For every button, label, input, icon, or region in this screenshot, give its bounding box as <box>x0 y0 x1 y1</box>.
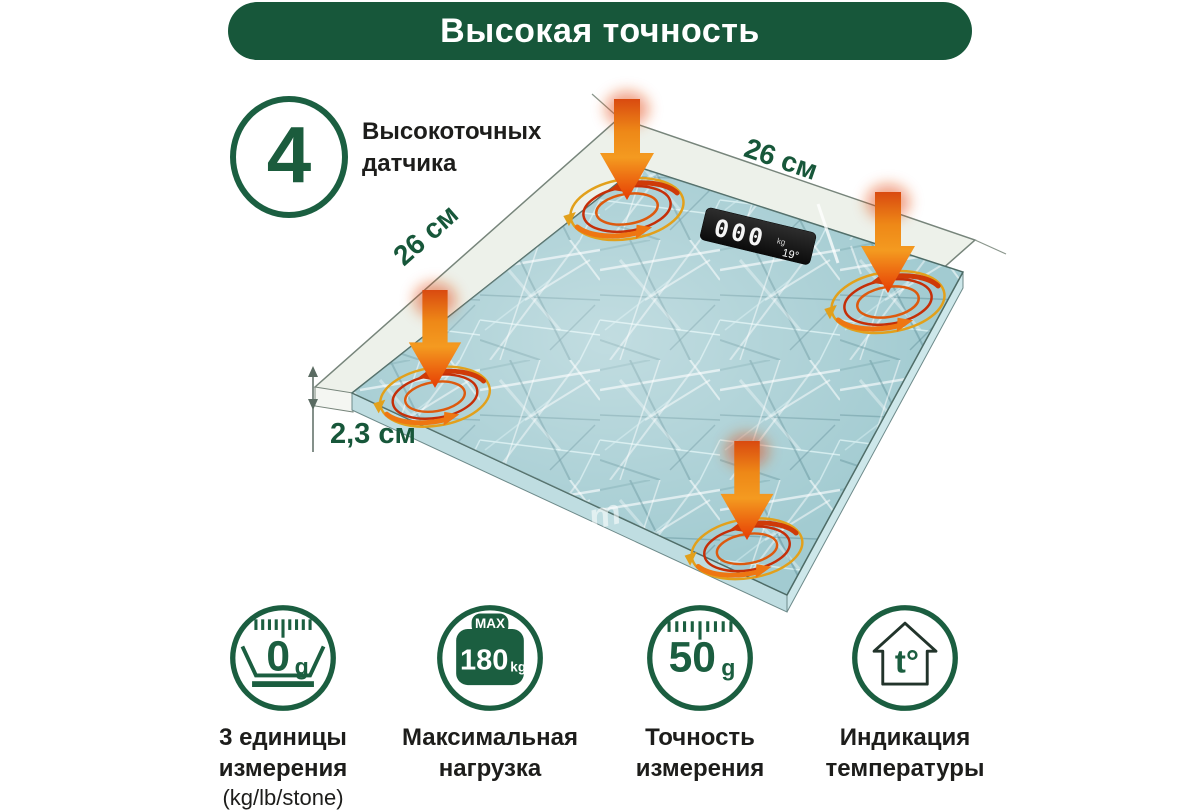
dim-left-label: 26 см <box>387 198 464 271</box>
units-zero-unit: g <box>295 653 309 679</box>
feature-max-load-caption: Максимальная нагрузка <box>385 722 595 784</box>
temperature-symbol: t° <box>895 643 919 680</box>
units-zero-value: 0 <box>266 633 290 681</box>
feature-temperature: t° <box>800 600 1010 716</box>
feature-units: 0 g <box>178 600 388 716</box>
feature-temperature-caption: Индикация температуры <box>800 722 1010 784</box>
house-temperature-icon: t° <box>847 600 963 716</box>
max-load-value: 180 <box>460 645 508 677</box>
feature-max-load: MAX 180 kg <box>385 600 595 716</box>
max-load-unit: kg <box>510 660 526 675</box>
ruler-precision-icon: 50 g <box>642 600 758 716</box>
feature-precision: 50 g <box>595 600 805 716</box>
dim-height-label: 2,3 см <box>330 418 416 450</box>
units-dial-icon: 0 g <box>225 600 341 716</box>
max-label: MAX <box>475 616 505 631</box>
max-weight-icon: MAX 180 kg <box>432 600 548 716</box>
feature-precision-caption: Точность измерения <box>595 722 805 784</box>
precision-unit: g <box>721 654 735 680</box>
precision-value: 50 <box>669 634 716 682</box>
feature-units-caption: 3 единицы измерения (kg/lb/stone) <box>178 722 388 812</box>
